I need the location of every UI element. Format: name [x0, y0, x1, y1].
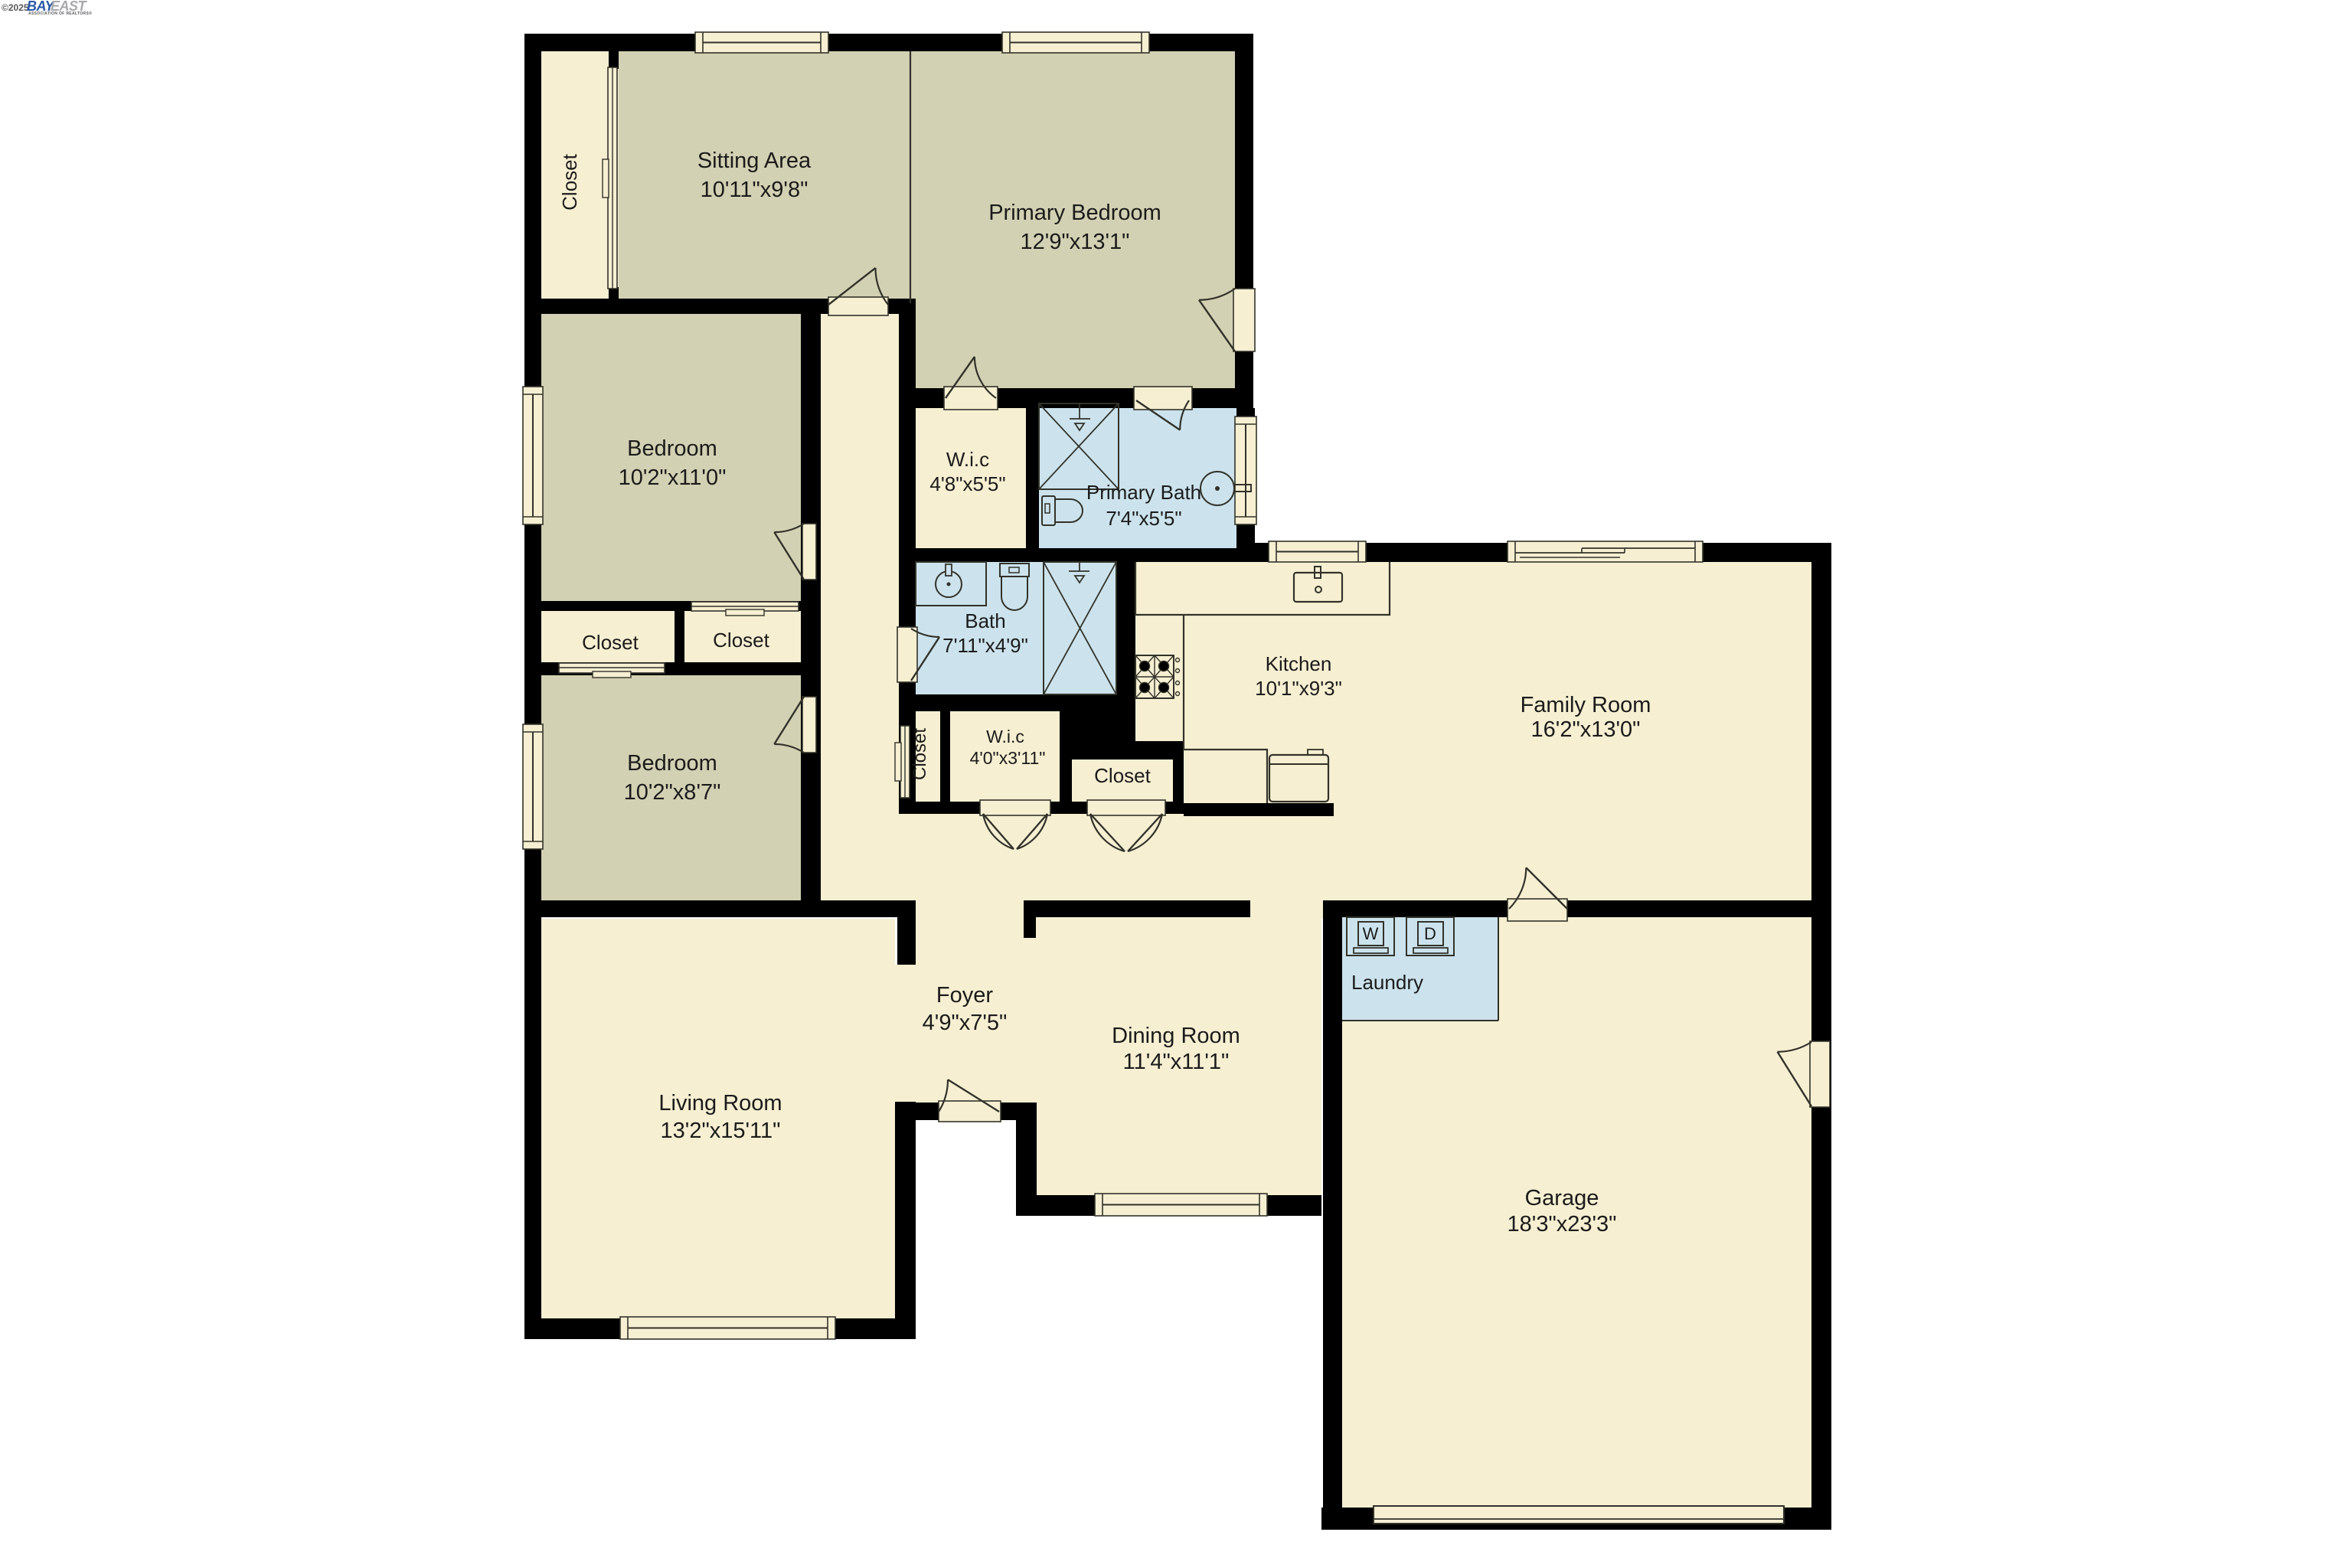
- svg-text:Bedroom: Bedroom: [627, 751, 717, 776]
- svg-text:10'2"x8'7": 10'2"x8'7": [624, 780, 721, 805]
- svg-text:10'2"x11'0": 10'2"x11'0": [619, 465, 727, 490]
- svg-text:Laundry: Laundry: [1351, 971, 1423, 994]
- svg-text:11'4"x11'1": 11'4"x11'1": [1123, 1050, 1230, 1074]
- svg-text:Sitting Area: Sitting Area: [697, 149, 812, 173]
- svg-text:Closet: Closet: [558, 153, 581, 210]
- svg-text:Primary Bath: Primary Bath: [1086, 481, 1201, 504]
- svg-text:13'2"x15'11": 13'2"x15'11": [661, 1119, 781, 1143]
- svg-text:16'2"x13'0": 16'2"x13'0": [1531, 717, 1641, 742]
- svg-text:Garage: Garage: [1525, 1186, 1599, 1210]
- svg-text:Dining Room: Dining Room: [1112, 1024, 1240, 1048]
- svg-text:Bath: Bath: [965, 609, 1006, 632]
- svg-text:©2025: ©2025: [2, 2, 29, 13]
- svg-text:10'1"x9'3": 10'1"x9'3": [1255, 677, 1342, 700]
- svg-text:Bedroom: Bedroom: [627, 436, 717, 461]
- svg-text:Family Room: Family Room: [1521, 693, 1651, 717]
- svg-text:Closet: Closet: [582, 631, 639, 654]
- svg-text:Closet: Closet: [910, 728, 930, 780]
- svg-text:12'9"x13'1": 12'9"x13'1": [1021, 230, 1130, 254]
- svg-text:W: W: [1363, 924, 1379, 943]
- svg-text:Primary Bedroom: Primary Bedroom: [988, 201, 1161, 225]
- svg-text:7'4"x5'5": 7'4"x5'5": [1106, 507, 1181, 530]
- svg-text:18'3"x23'3": 18'3"x23'3": [1508, 1212, 1617, 1236]
- svg-text:Foyer: Foyer: [936, 983, 993, 1008]
- svg-text:W.i.c: W.i.c: [946, 448, 989, 471]
- svg-text:7'11"x4'9": 7'11"x4'9": [942, 634, 1028, 657]
- svg-text:Closet: Closet: [713, 629, 769, 652]
- svg-text:W.i.c: W.i.c: [986, 727, 1024, 746]
- svg-text:4'9"x7'5": 4'9"x7'5": [923, 1011, 1008, 1035]
- svg-text:Living Room: Living Room: [658, 1091, 782, 1116]
- svg-text:4'0"x3'11": 4'0"x3'11": [970, 748, 1046, 768]
- svg-text:10'11"x9'8": 10'11"x9'8": [701, 178, 808, 202]
- svg-text:Kitchen: Kitchen: [1266, 652, 1332, 675]
- svg-text:ASSOCIATION OF REALTORS®: ASSOCIATION OF REALTORS®: [28, 11, 92, 16]
- svg-text:4'8"x5'5": 4'8"x5'5": [929, 472, 1005, 495]
- svg-text:D: D: [1424, 924, 1436, 943]
- svg-text:Closet: Closet: [1094, 764, 1151, 787]
